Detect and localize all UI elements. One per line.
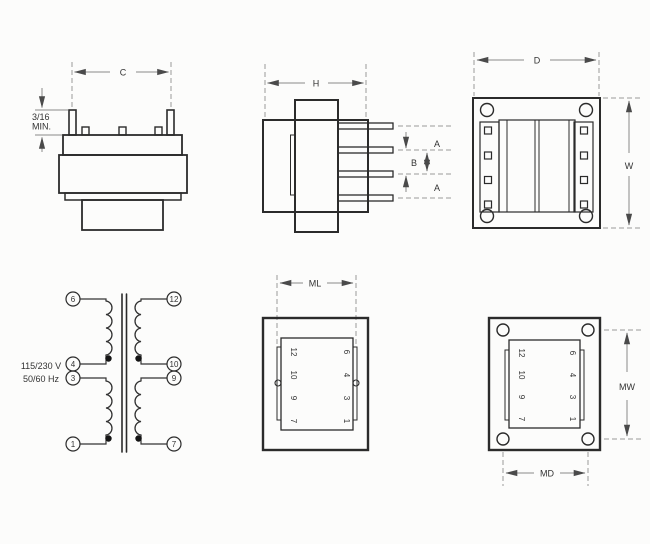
- dimension-c-label: C: [120, 68, 127, 78]
- dimension-h-label: H: [313, 79, 320, 89]
- mounting-hole: [582, 324, 594, 336]
- pin-hole: [485, 201, 492, 208]
- pin-label: 7: [517, 417, 526, 422]
- lead-min-label-line1: 3/16: [32, 112, 50, 122]
- secondary-coil-bottom: [135, 381, 141, 435]
- polarity-dot: [135, 355, 141, 361]
- front-view: C 3/16 MIN.: [32, 62, 187, 230]
- pin-1-label: 1: [71, 440, 76, 449]
- dimension-a-top-label: A: [434, 139, 440, 149]
- front-bottom-skirt: [82, 200, 163, 230]
- pin-label: 6: [568, 351, 577, 356]
- pin-hole: [485, 177, 492, 184]
- pin-hole: [581, 127, 588, 134]
- rating-voltage-label: 115/230 V: [21, 361, 61, 371]
- polarity-dot: [105, 355, 111, 361]
- front-lead-left: [69, 110, 76, 135]
- side-pin-2: [338, 147, 393, 153]
- polarity-dot: [105, 435, 111, 441]
- mount-view-outline: [489, 318, 600, 450]
- bottom-mount-view: 12 10 9 7 6 4 3 1 MW MD: [489, 318, 644, 486]
- dimension-mw-label: MW: [619, 382, 635, 392]
- front-tab: [119, 127, 126, 135]
- bottom-open-view: ML 12 10 9 7 6 4 3 1: [263, 275, 368, 450]
- top-bobbin: [499, 120, 575, 212]
- pin-label: 1: [342, 419, 351, 424]
- pin-label: 12: [289, 348, 298, 357]
- mounting-hole: [582, 433, 594, 445]
- pin-label: 9: [517, 395, 526, 400]
- pin-label: 4: [568, 373, 577, 378]
- pin-label: 10: [517, 371, 526, 380]
- front-lead-right: [167, 110, 174, 135]
- wire: [80, 355, 106, 364]
- drawing-canvas: C 3/16 MIN. H: [0, 0, 650, 544]
- wire: [141, 355, 167, 364]
- polarity-dot: [135, 435, 141, 441]
- pin-label: 12: [517, 349, 526, 358]
- front-bobbin-flange-bottom: [65, 193, 181, 200]
- front-core: [59, 155, 187, 193]
- wire: [80, 435, 106, 444]
- mounting-hole: [580, 104, 593, 117]
- schematic: 115/230 V 50/60 Hz 6 4 3 1 12: [21, 292, 181, 452]
- front-bobbin-flange-top: [63, 135, 182, 155]
- front-tab: [155, 127, 162, 135]
- mounting-hole: [497, 324, 509, 336]
- pin-12-label: 12: [170, 295, 179, 304]
- pin-10-label: 10: [170, 360, 179, 369]
- secondary-coil-top: [135, 301, 141, 355]
- pin-label: 10: [289, 371, 298, 380]
- pin-hole: [581, 201, 588, 208]
- side-view: H A B A: [263, 64, 452, 232]
- top-pin-strip-right: [574, 122, 593, 212]
- pin-label: 3: [342, 396, 351, 401]
- pin-label: 1: [568, 417, 577, 422]
- pin-label: 6: [342, 350, 351, 355]
- dimension-d-label: D: [534, 56, 541, 66]
- dimension-b-label: B: [411, 158, 417, 168]
- wire: [141, 299, 167, 301]
- side-pin-3: [338, 171, 393, 177]
- pin-label: 4: [342, 373, 351, 378]
- pin-4-label: 4: [71, 360, 76, 369]
- pin-9-label: 9: [172, 374, 177, 383]
- pin-hole: [581, 177, 588, 184]
- dimension-md-label: MD: [540, 469, 554, 479]
- wire: [141, 435, 167, 444]
- side-pin-1: [338, 123, 393, 129]
- front-tab: [82, 127, 89, 135]
- pin-label: 9: [289, 396, 298, 401]
- wire: [141, 378, 167, 381]
- pin-3-label: 3: [71, 374, 76, 383]
- primary-coil-top: [106, 301, 112, 355]
- top-pin-strip-left: [480, 122, 499, 212]
- dimension-a-bottom-label: A: [434, 183, 440, 193]
- pin-6-label: 6: [71, 295, 76, 304]
- boss-left: [275, 380, 281, 386]
- mounting-hole: [497, 433, 509, 445]
- lead-min-label-line2: MIN.: [32, 122, 51, 132]
- primary-coil-bottom: [106, 381, 112, 435]
- pin-label: 7: [289, 419, 298, 424]
- rating-frequency-label: 50/60 Hz: [23, 374, 60, 384]
- pin-hole: [485, 152, 492, 159]
- transformer-drawing-sheet: C 3/16 MIN. H: [0, 0, 650, 544]
- side-core: [263, 120, 368, 212]
- dimension-ml-label: ML: [309, 279, 322, 289]
- wire: [80, 378, 106, 381]
- top-view: D W: [473, 52, 643, 228]
- dimension-w-label: W: [625, 161, 634, 171]
- boss-right: [353, 380, 359, 386]
- mounting-hole: [481, 104, 494, 117]
- pin-hole: [485, 127, 492, 134]
- pin-hole: [581, 152, 588, 159]
- pin-7-label: 7: [172, 440, 177, 449]
- pin-label: 3: [568, 395, 577, 400]
- wire: [80, 299, 106, 301]
- side-pin-4: [338, 195, 393, 201]
